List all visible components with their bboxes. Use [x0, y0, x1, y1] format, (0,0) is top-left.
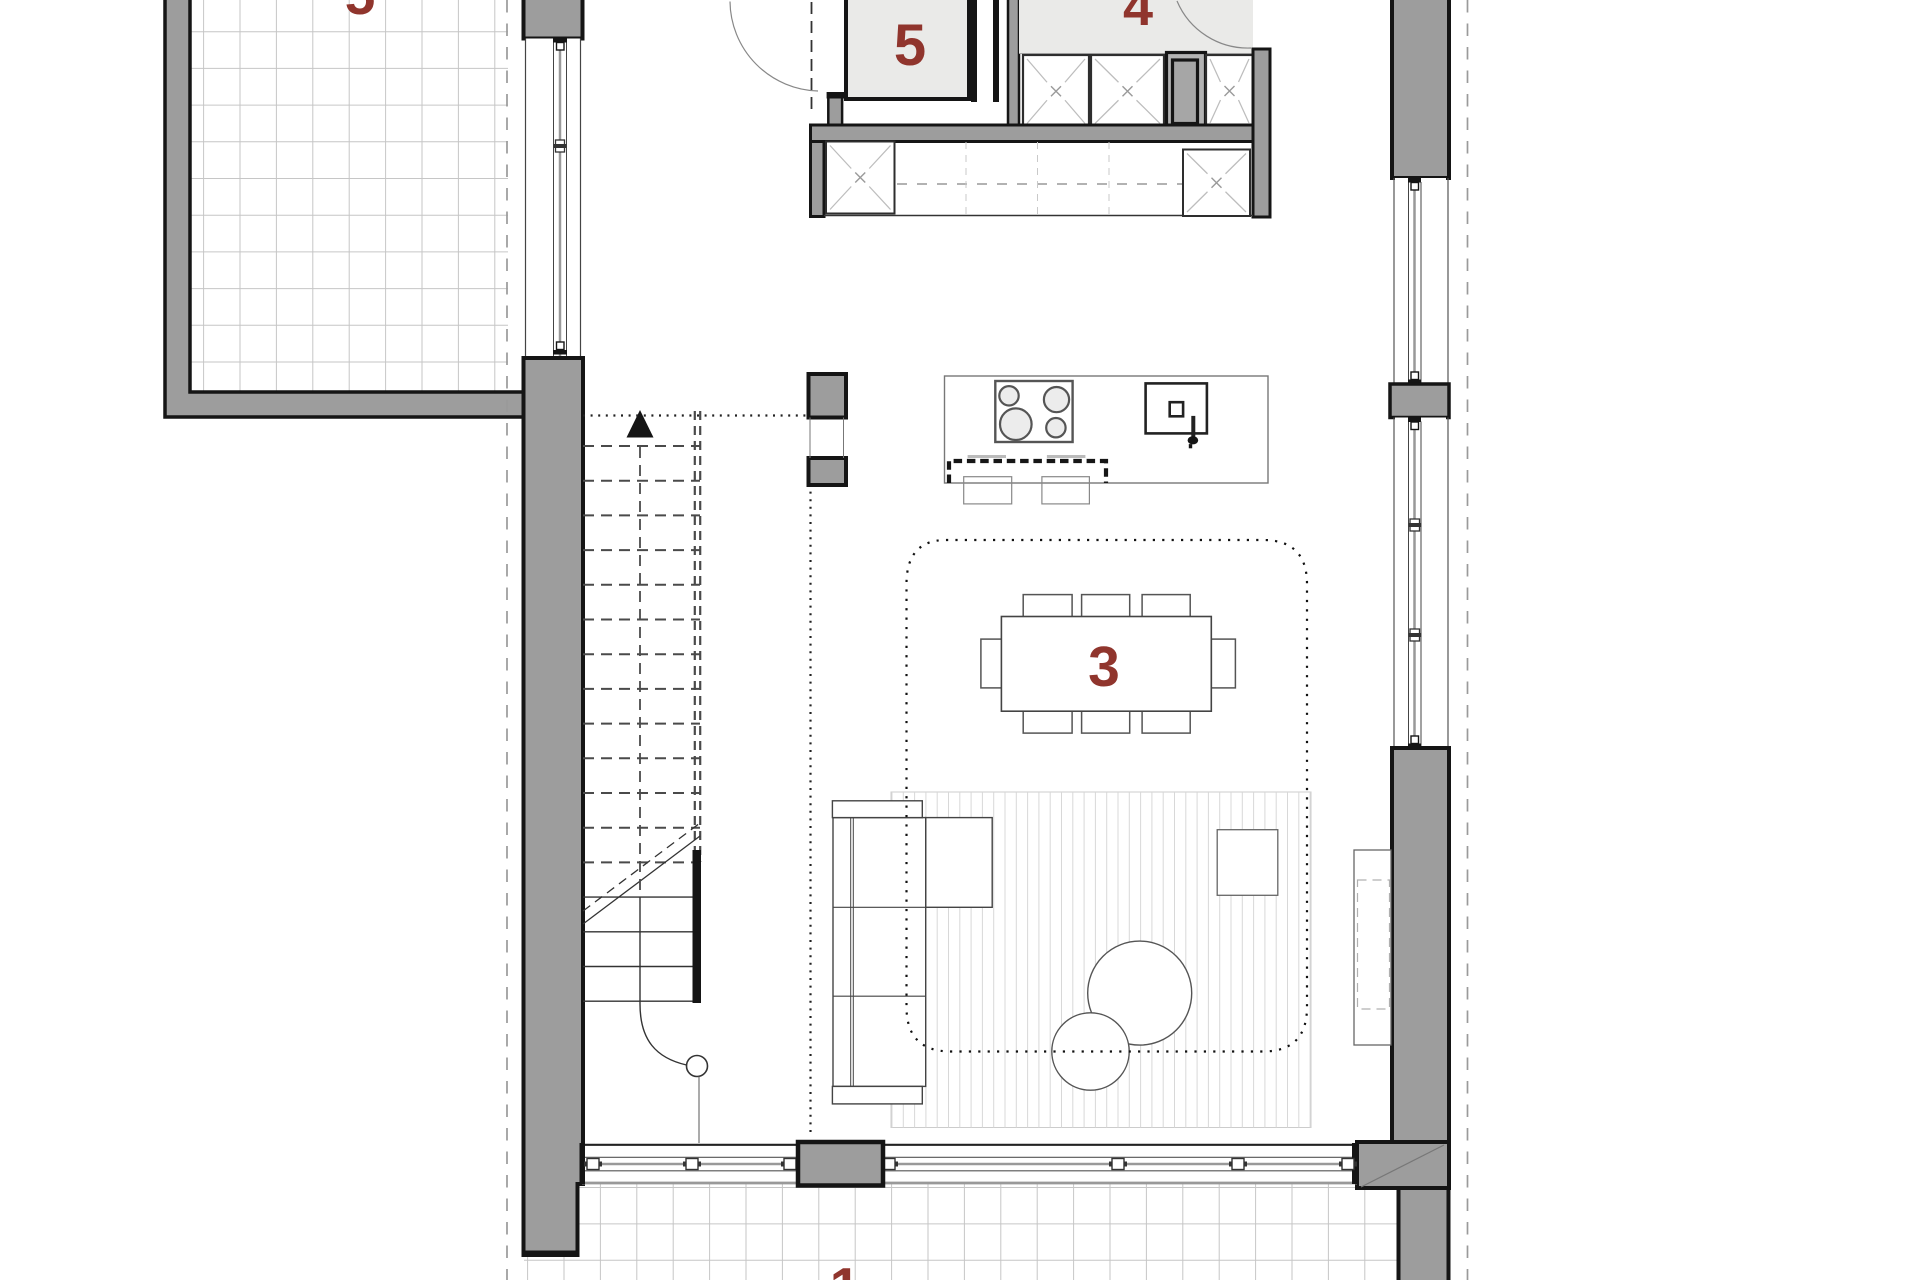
svg-text:3: 3	[1088, 635, 1120, 699]
svg-text:1: 1	[830, 1256, 861, 1280]
svg-text:5: 5	[345, 0, 376, 26]
svg-text:4: 4	[1123, 0, 1153, 37]
svg-text:5: 5	[894, 13, 926, 78]
